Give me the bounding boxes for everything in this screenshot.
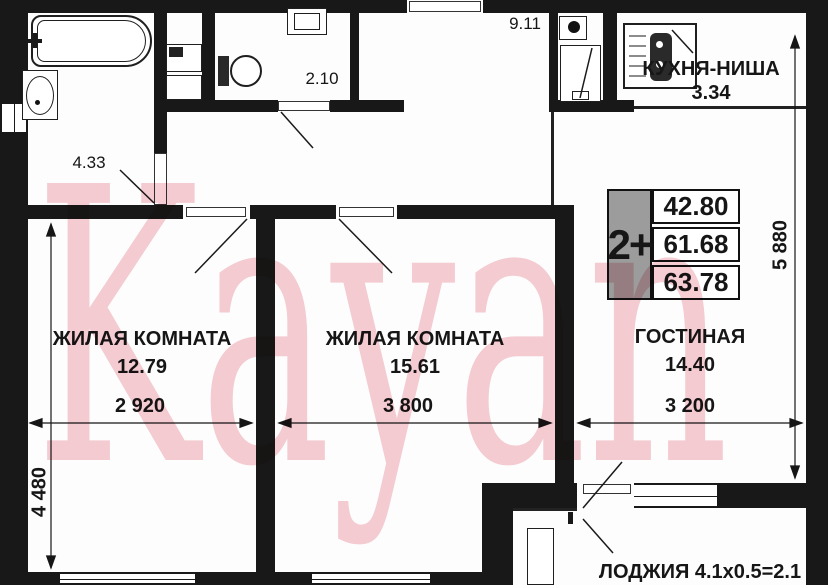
arrow xyxy=(790,419,802,428)
arrow xyxy=(791,466,800,478)
bedroom1-label: ЖИЛАЯ КОМНАТА xyxy=(53,328,232,351)
dim-bedroom1-width: 2 920 xyxy=(115,395,165,418)
stove-detail-line xyxy=(672,30,693,53)
loggia-partition-door-swing xyxy=(583,519,613,553)
shaft-cabinet-door-line xyxy=(580,48,592,98)
kitchen-area-label: 3.34 xyxy=(692,82,731,105)
arrow xyxy=(578,419,590,428)
arrow xyxy=(240,419,252,428)
area-value-cell-1: 42.80 xyxy=(652,189,740,224)
bedroom2-label: ЖИЛАЯ КОМНАТА xyxy=(326,328,505,351)
arrow xyxy=(30,419,42,428)
arrow xyxy=(791,36,800,48)
apartment-type-cell: 2+ xyxy=(607,189,652,300)
bedroom2-area-label: 15.61 xyxy=(390,356,440,379)
dim-left-height: 4 480 xyxy=(29,467,52,517)
arrow xyxy=(539,419,551,428)
floor-plan: 9.11 2.10 4.33 КУХНЯ-НИША 3.34 ЖИЛАЯ КОМ… xyxy=(0,0,828,585)
dim-bedroom2-width: 3 800 xyxy=(383,395,433,418)
arrow xyxy=(47,556,56,568)
bathroom-door-swing xyxy=(120,170,154,203)
dim-right-height: 5 880 xyxy=(770,220,793,270)
hall-area-label: 9.11 xyxy=(509,14,541,34)
bedroom2-door-swing xyxy=(339,219,392,273)
living-area-label: 14.40 xyxy=(665,354,715,377)
living-label: ГОСТИНАЯ xyxy=(635,326,745,349)
loggia-label: ЛОДЖИЯ 4.1х0.5=2.1 xyxy=(599,561,801,584)
arrow xyxy=(47,224,56,236)
bedroom1-area-label: 12.79 xyxy=(117,356,167,379)
dimension-lines xyxy=(30,36,802,568)
wc-door-swing xyxy=(281,112,313,148)
bedroom1-door-swing xyxy=(195,219,247,273)
arrow xyxy=(279,419,291,428)
bathroom-area-label: 4.33 xyxy=(72,153,105,173)
loggia-door-swing xyxy=(583,462,622,508)
wc-area-label: 2.10 xyxy=(305,69,338,89)
area-value-cell-2: 61.68 xyxy=(652,227,740,262)
dim-living-width: 3 200 xyxy=(665,395,715,418)
area-value-cell-3: 63.78 xyxy=(652,265,740,300)
kitchen-label: КУХНЯ-НИША xyxy=(642,58,779,81)
